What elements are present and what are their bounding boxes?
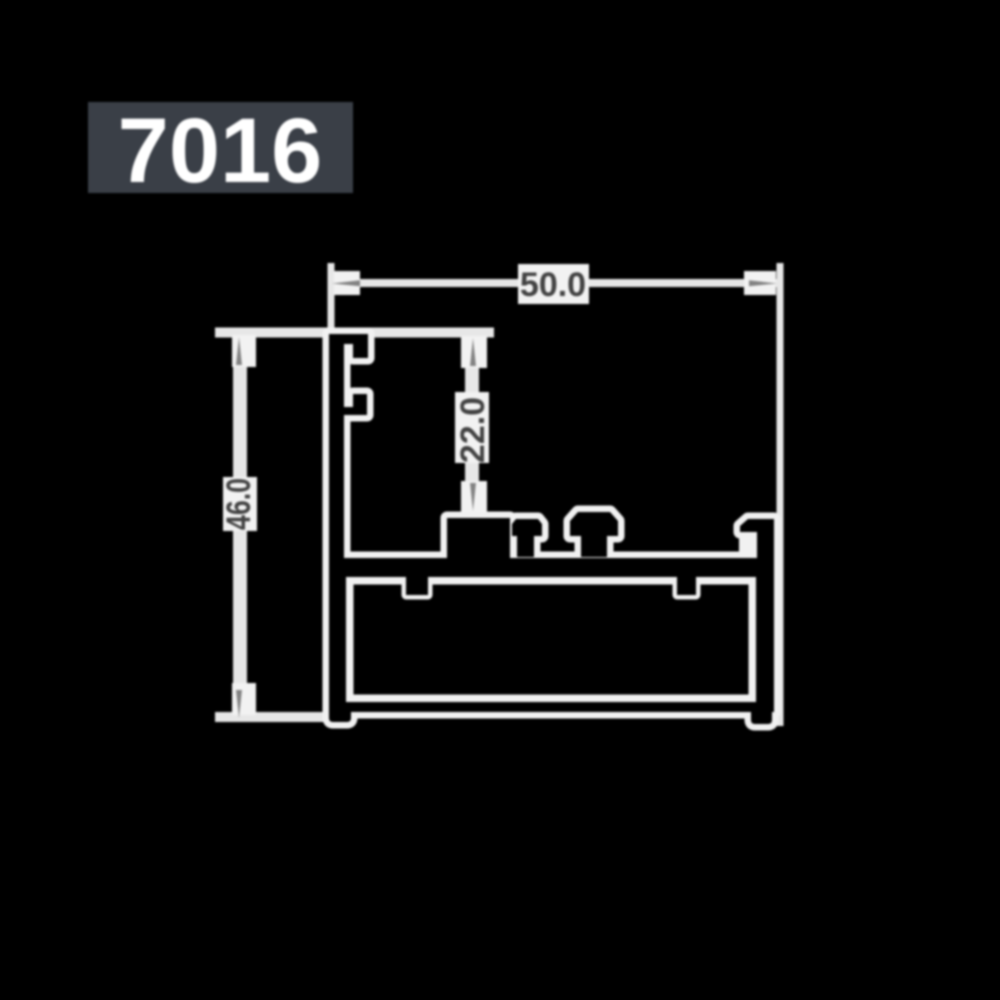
svg-text:46.0: 46.0 bbox=[220, 478, 258, 530]
svg-text:22.0: 22.0 bbox=[454, 397, 492, 463]
svg-text:50.0: 50.0 bbox=[520, 266, 586, 304]
svg-text:7016: 7016 bbox=[118, 100, 323, 202]
